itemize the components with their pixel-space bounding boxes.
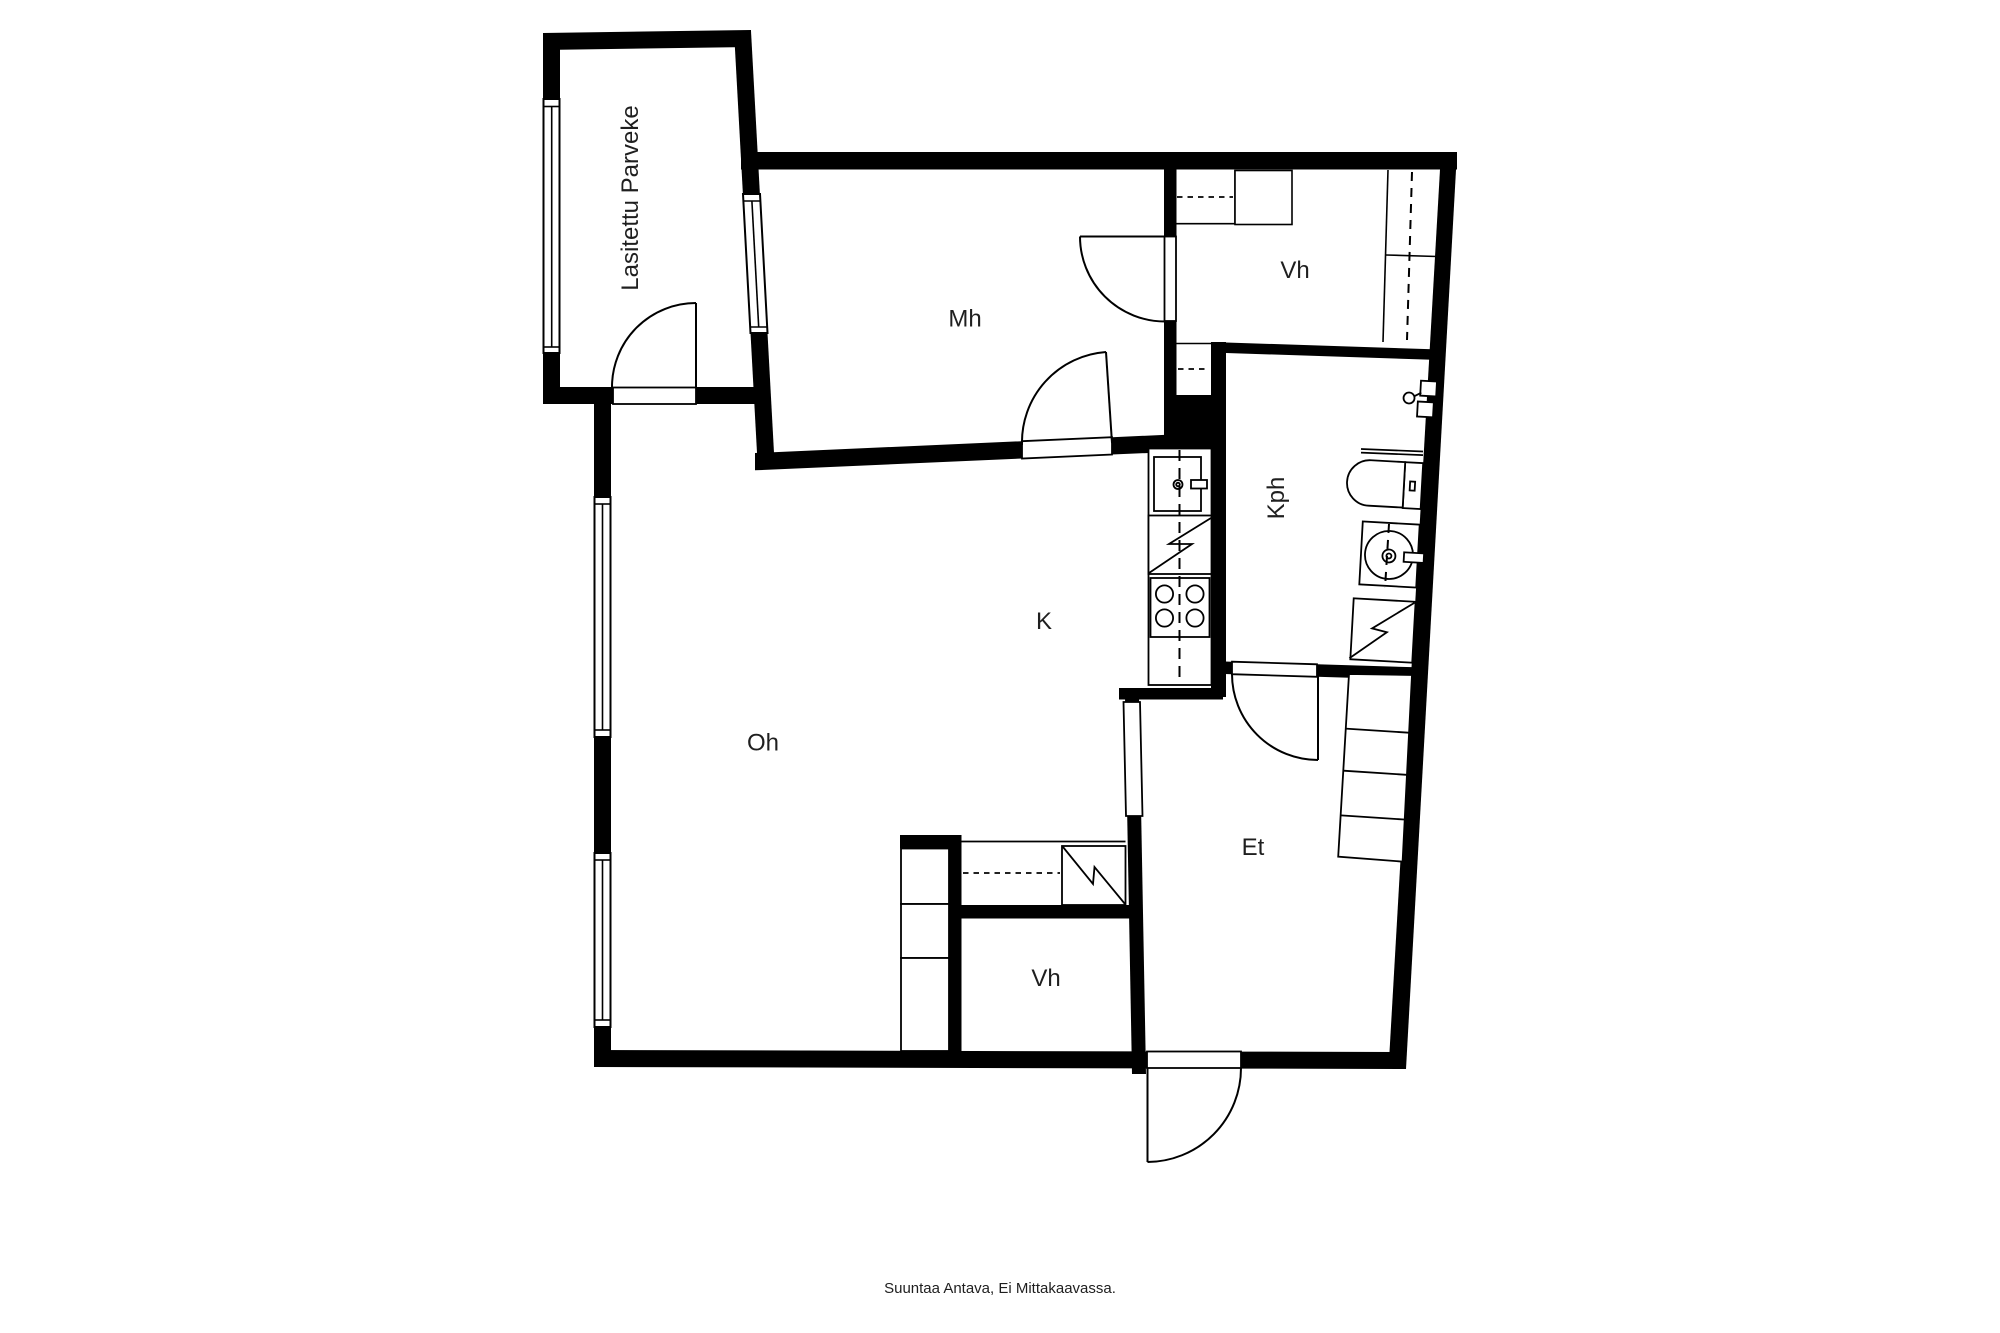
svg-text:Et: Et (1242, 834, 1265, 861)
svg-text:Kph: Kph (1263, 477, 1290, 520)
svg-text:Lasitettu Parveke: Lasitettu Parveke (617, 105, 644, 290)
svg-text:Suuntaa Antava, Ei Mittakaavas: Suuntaa Antava, Ei Mittakaavassa. (884, 1280, 1116, 1297)
svg-text:Oh: Oh (747, 730, 779, 757)
svg-text:K: K (1036, 608, 1052, 635)
svg-text:Vh: Vh (1280, 257, 1309, 284)
svg-text:Mh: Mh (948, 306, 981, 333)
svg-text:Vh: Vh (1031, 965, 1060, 992)
